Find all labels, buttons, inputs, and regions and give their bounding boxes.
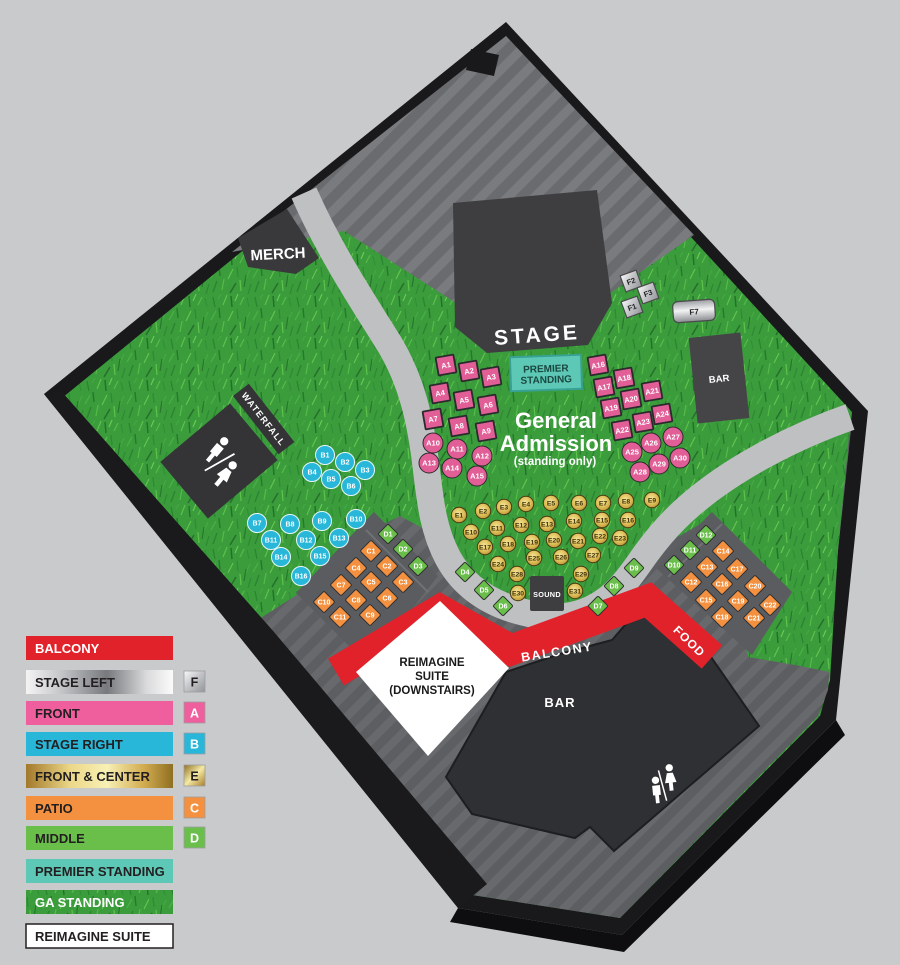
svg-text:A29: A29: [652, 460, 666, 469]
svg-text:A15: A15: [470, 472, 484, 481]
svg-text:MIDDLE: MIDDLE: [35, 831, 85, 846]
svg-text:B7: B7: [253, 521, 262, 528]
svg-text:B3: B3: [361, 468, 370, 475]
svg-text:(standing only): (standing only): [514, 456, 597, 468]
svg-text:E5: E5: [547, 501, 556, 508]
svg-text:B4: B4: [308, 470, 317, 477]
svg-text:C19: C19: [732, 599, 745, 606]
svg-text:STANDING: STANDING: [520, 374, 572, 387]
svg-text:E12: E12: [515, 523, 527, 530]
svg-text:STAGE RIGHT: STAGE RIGHT: [35, 737, 123, 752]
svg-text:A25: A25: [625, 448, 639, 457]
svg-text:C11: C11: [334, 615, 347, 622]
svg-text:A5: A5: [459, 395, 470, 406]
svg-text:C: C: [190, 802, 199, 816]
svg-text:C1: C1: [367, 549, 376, 556]
svg-text:D6: D6: [499, 604, 508, 611]
svg-text:C13: C13: [701, 565, 714, 572]
svg-text:BAR: BAR: [544, 695, 575, 710]
svg-text:C18: C18: [716, 615, 729, 622]
svg-text:B15: B15: [314, 554, 327, 561]
svg-text:E4: E4: [522, 502, 531, 509]
svg-text:A8: A8: [454, 421, 465, 432]
svg-text:E6: E6: [575, 501, 584, 508]
svg-text:B10: B10: [350, 517, 363, 524]
svg-text:A3: A3: [486, 372, 497, 383]
svg-text:E26: E26: [555, 555, 567, 562]
svg-text:C20: C20: [749, 584, 762, 591]
svg-text:C10: C10: [318, 600, 331, 607]
svg-text:(DOWNSTAIRS): (DOWNSTAIRS): [389, 685, 475, 697]
svg-text:D3: D3: [414, 564, 423, 571]
svg-text:C12: C12: [685, 580, 698, 587]
svg-text:D2: D2: [399, 547, 408, 554]
svg-text:E8: E8: [622, 499, 631, 506]
svg-text:C3: C3: [399, 580, 408, 587]
svg-text:A14: A14: [445, 464, 460, 473]
svg-text:B13: B13: [333, 536, 346, 543]
svg-text:A27: A27: [666, 433, 680, 442]
svg-text:B12: B12: [300, 538, 313, 545]
svg-text:C5: C5: [367, 580, 376, 587]
svg-text:A1: A1: [441, 360, 452, 371]
svg-text:E: E: [190, 770, 198, 784]
svg-text:D1: D1: [384, 532, 393, 539]
svg-text:B16: B16: [295, 574, 308, 581]
svg-text:SUITE: SUITE: [415, 671, 449, 683]
svg-text:General: General: [515, 408, 597, 433]
svg-text:C7: C7: [337, 583, 346, 590]
svg-text:BAR: BAR: [708, 373, 730, 386]
svg-text:E16: E16: [622, 518, 634, 525]
svg-text:B5: B5: [327, 477, 336, 484]
svg-text:E27: E27: [587, 553, 599, 560]
svg-text:C15: C15: [700, 598, 713, 605]
svg-text:A: A: [190, 707, 199, 721]
svg-text:GA STANDING: GA STANDING: [35, 895, 125, 910]
svg-text:Admission: Admission: [500, 431, 612, 456]
svg-text:D7: D7: [594, 604, 603, 611]
svg-text:C6: C6: [383, 596, 392, 603]
svg-text:B14: B14: [275, 555, 288, 562]
svg-text:E18: E18: [502, 542, 514, 549]
svg-text:A13: A13: [422, 459, 436, 468]
svg-text:D4: D4: [461, 570, 470, 577]
svg-text:A10: A10: [426, 439, 440, 448]
svg-text:D10: D10: [668, 563, 681, 570]
svg-text:E21: E21: [572, 539, 584, 546]
svg-text:BALCONY: BALCONY: [35, 641, 100, 656]
svg-text:REIMAGINE SUITE: REIMAGINE SUITE: [35, 929, 151, 944]
svg-text:C14: C14: [717, 549, 730, 556]
svg-text:D11: D11: [684, 548, 697, 555]
svg-text:E11: E11: [491, 526, 503, 533]
svg-text:E25: E25: [528, 556, 540, 563]
svg-text:C22: C22: [764, 603, 777, 610]
svg-text:B1: B1: [321, 453, 330, 460]
svg-text:E22: E22: [594, 534, 606, 541]
svg-text:A28: A28: [633, 468, 647, 477]
svg-text:FRONT: FRONT: [35, 706, 80, 721]
svg-text:REIMAGINE: REIMAGINE: [399, 657, 465, 669]
svg-text:E28: E28: [511, 572, 523, 579]
svg-text:F: F: [191, 676, 199, 690]
svg-text:A9: A9: [481, 426, 492, 437]
svg-text:B9: B9: [318, 519, 327, 526]
svg-text:A2: A2: [464, 366, 475, 377]
svg-text:C21: C21: [748, 616, 761, 623]
svg-text:C4: C4: [352, 566, 361, 573]
svg-text:PREMIER STANDING: PREMIER STANDING: [35, 864, 165, 879]
svg-text:E24: E24: [492, 562, 504, 569]
svg-text:B6: B6: [347, 484, 356, 491]
svg-text:E31: E31: [569, 589, 581, 596]
svg-text:B11: B11: [265, 538, 278, 545]
svg-text:C16: C16: [716, 582, 729, 589]
svg-text:E19: E19: [526, 540, 538, 547]
svg-text:D: D: [190, 832, 199, 846]
svg-text:E15: E15: [596, 518, 608, 525]
svg-text:B: B: [190, 738, 199, 752]
svg-text:E14: E14: [568, 519, 580, 526]
svg-text:B8: B8: [286, 522, 295, 529]
svg-text:E1: E1: [455, 513, 464, 520]
svg-text:B2: B2: [341, 460, 350, 467]
svg-text:E2: E2: [479, 509, 488, 516]
svg-text:E17: E17: [479, 545, 491, 552]
svg-text:D5: D5: [480, 588, 489, 595]
svg-text:PATIO: PATIO: [35, 801, 73, 816]
svg-text:C8: C8: [352, 598, 361, 605]
svg-text:E29: E29: [575, 572, 587, 579]
svg-text:E3: E3: [500, 505, 509, 512]
svg-text:A7: A7: [428, 414, 439, 425]
svg-text:E9: E9: [648, 498, 657, 505]
svg-text:D12: D12: [700, 533, 713, 540]
svg-text:F7: F7: [689, 307, 699, 317]
svg-text:E30: E30: [512, 591, 524, 598]
svg-text:D8: D8: [610, 584, 619, 591]
svg-text:A30: A30: [673, 454, 687, 463]
svg-text:D9: D9: [630, 566, 639, 573]
svg-text:E23: E23: [614, 536, 626, 543]
svg-text:E7: E7: [599, 501, 608, 508]
svg-text:A6: A6: [483, 400, 494, 411]
svg-text:C2: C2: [383, 564, 392, 571]
svg-text:FRONT & CENTER: FRONT & CENTER: [35, 769, 150, 784]
svg-text:E10: E10: [465, 530, 477, 537]
svg-text:E20: E20: [548, 538, 560, 545]
svg-text:STAGE LEFT: STAGE LEFT: [35, 675, 115, 690]
svg-text:MERCH: MERCH: [250, 245, 306, 265]
svg-text:C9: C9: [366, 613, 375, 620]
svg-text:A26: A26: [644, 439, 658, 448]
svg-text:SOUND: SOUND: [533, 590, 561, 599]
svg-text:E13: E13: [541, 522, 553, 529]
svg-text:A12: A12: [475, 452, 489, 461]
svg-text:C17: C17: [731, 567, 744, 574]
svg-text:A11: A11: [450, 445, 463, 454]
